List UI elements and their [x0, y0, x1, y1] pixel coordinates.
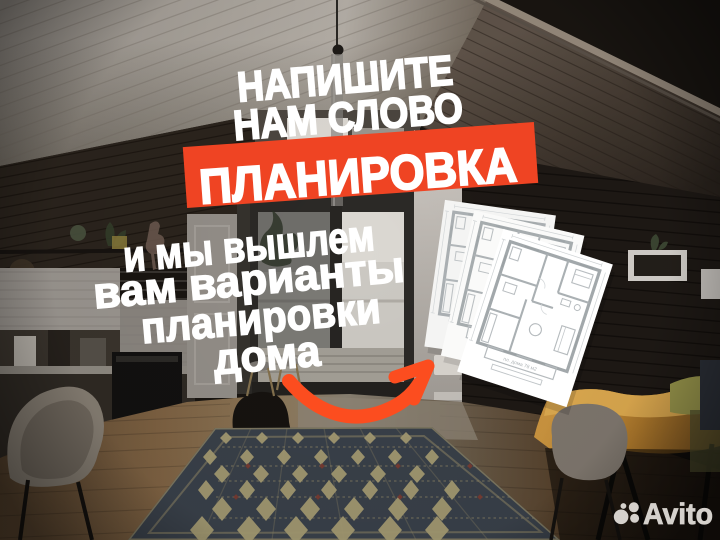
svg-text:Avito: Avito: [643, 498, 713, 531]
svg-text:дома: дома: [211, 326, 322, 384]
